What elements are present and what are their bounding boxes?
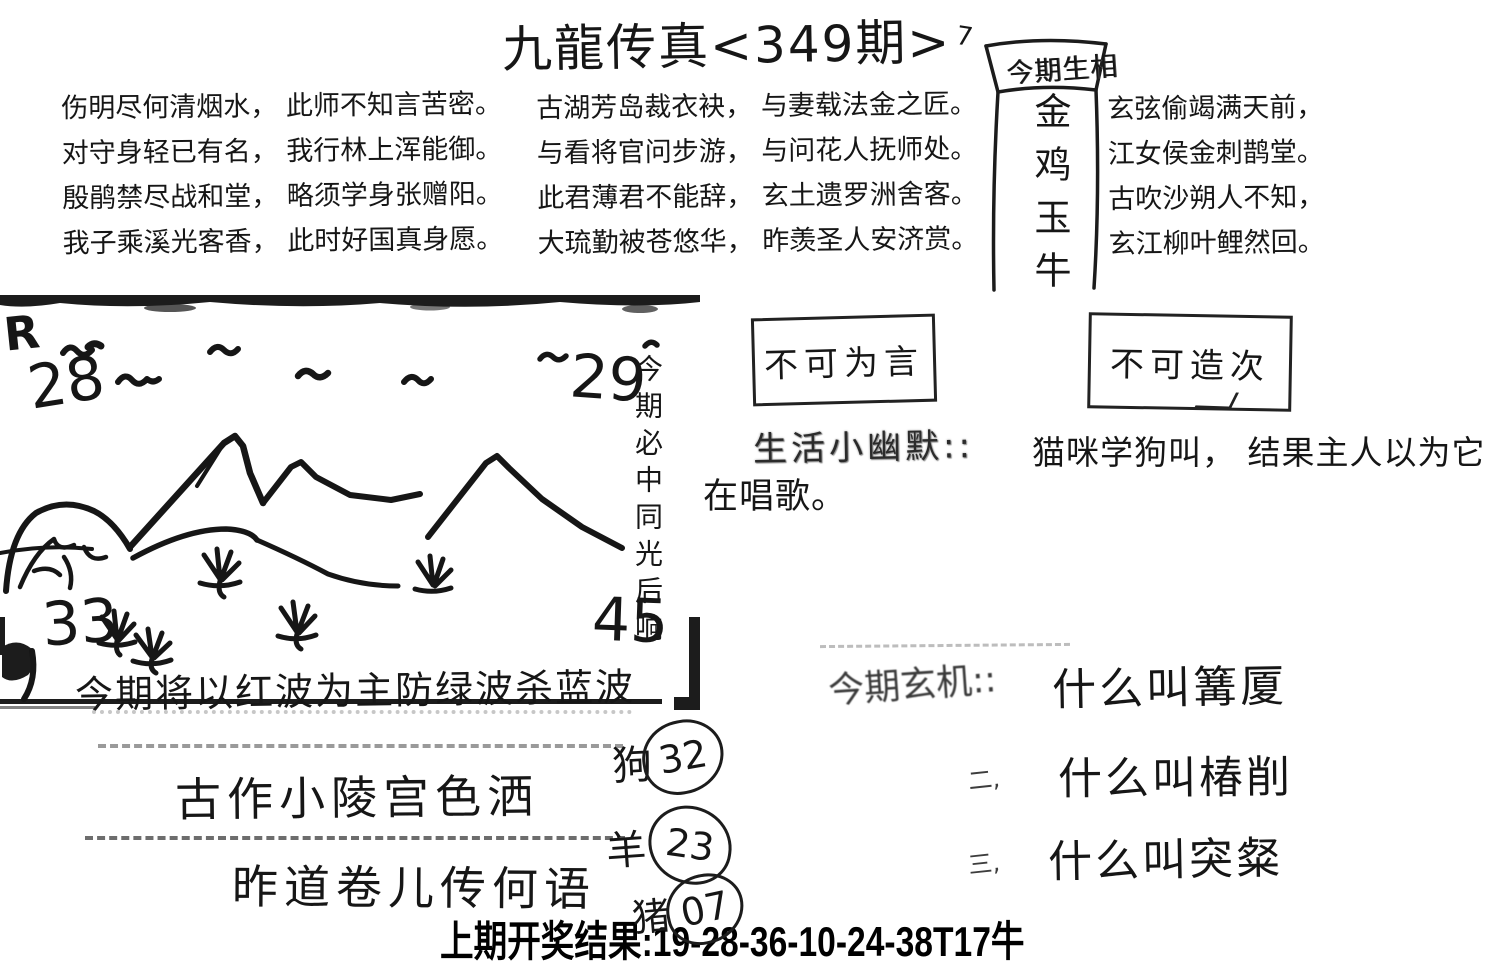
poem-middle-line3: 此君薄君不能辞， 玄土遗罗洲舍客。 [537,172,978,222]
zodiac-pick-3-number: 07 [677,882,733,935]
poem-right-line2: 江女侯金刺鹊堂。 [1108,130,1324,177]
mystery-item-1: 什么叫篝厦 [1051,650,1287,718]
mystery-item-3: 什么叫突粲 [1047,822,1283,890]
poem-right-line3: 古吹沙朔人不知， [1108,175,1324,222]
humor-label: 生活小幽默:: [753,418,975,471]
dashed-rule-2 [85,836,625,840]
wave-tip: 今期将以红波为主防绿波杀蓝波 [75,656,636,719]
warning-box-2: 不可造次 [1087,312,1293,412]
poem-left-line2: 对守身轻已有名， 我行林上浑能御。 [62,127,503,177]
mystery-item-3-marker: 三, [966,842,1001,880]
poem-middle-line4: 大琉勤被苍悠华， 昨羡圣人安济赏。 [537,217,978,267]
poem-middle: 古湖芳岛裁衣袂， 与妻载法金之匠。 与看将官问步游， 与问花人抚师处。 此君薄君… [536,82,978,267]
poem-left-line1: 伤明尽何清烟水， 此师不知言苦密。 [61,82,502,132]
mystery-faint-rule [820,643,1070,648]
poem-right: 玄弦偷竭满天前， 江女侯金刺鹊堂。 古吹沙朔人不知， 玄江柳叶鲤然回。 [1107,85,1325,267]
poem-left-line3: 殷鹃禁尽战和堂， 略须学身张赠阳。 [62,172,503,222]
mystery-item-2: 什么叫椿削 [1058,741,1294,807]
dashed-rule-1 [98,744,623,748]
vertical-note: 今期必中同光后响 [630,354,664,724]
last-result-label: 上期开奖结果: [440,918,653,965]
poem-right-line4: 玄江柳叶鲤然回。 [1108,220,1324,267]
mystery-label: 今期玄机:: [826,650,997,714]
zodiac-pick-2-animal: 羊 [604,817,648,878]
warning-box-1: 不可为言 [751,314,937,407]
sheet-title: 九龍传真<349期> [501,2,951,82]
mystery-item-2-marker: 二, [966,758,1001,796]
zodiac-pick-1-number: 32 [655,731,710,783]
title-side-mark: 7 [954,21,975,53]
drawing-number-bottom-left: 33 [40,585,121,660]
poem-left-line4: 我子乘溪光客香， 此时好国真身愿。 [62,217,503,267]
slogan-line1: 古作小陵宫色洒 [175,760,540,830]
poem-middle-line2: 与看将官问步游， 与问花人抚师处。 [537,127,978,177]
humor-line1: 猫咪学狗叫， 结果主人以为它 [1032,426,1486,474]
zodiac-pick-2-number: 23 [663,820,717,870]
warning-box-2-label: 不可造次 [1110,336,1271,388]
lottery-tip-sheet: 九龍传真<349期> 7 今期生相 金鸡玉牛 伤明尽何清烟水， 此师不知言苦密。… [0,0,1500,968]
zodiac-box-body: 金鸡玉牛 [1022,92,1076,292]
warning-box-1-label: 不可为言 [763,333,924,386]
poem-middle-line1: 古湖芳岛裁衣袂， 与妻载法金之匠。 [536,82,977,132]
zodiac-box-header: 今期生相 [1005,44,1119,91]
humor-line2: 在唱歌。 [703,468,847,519]
poem-left: 伤明尽何清烟水， 此师不知言苦密。 对守身轻已有名， 我行林上浑能御。 殷鹃禁尽… [61,82,503,267]
poem-right-line1: 玄弦偷竭满天前， [1107,85,1323,132]
drawing-number-top-left: 28 [23,342,109,423]
